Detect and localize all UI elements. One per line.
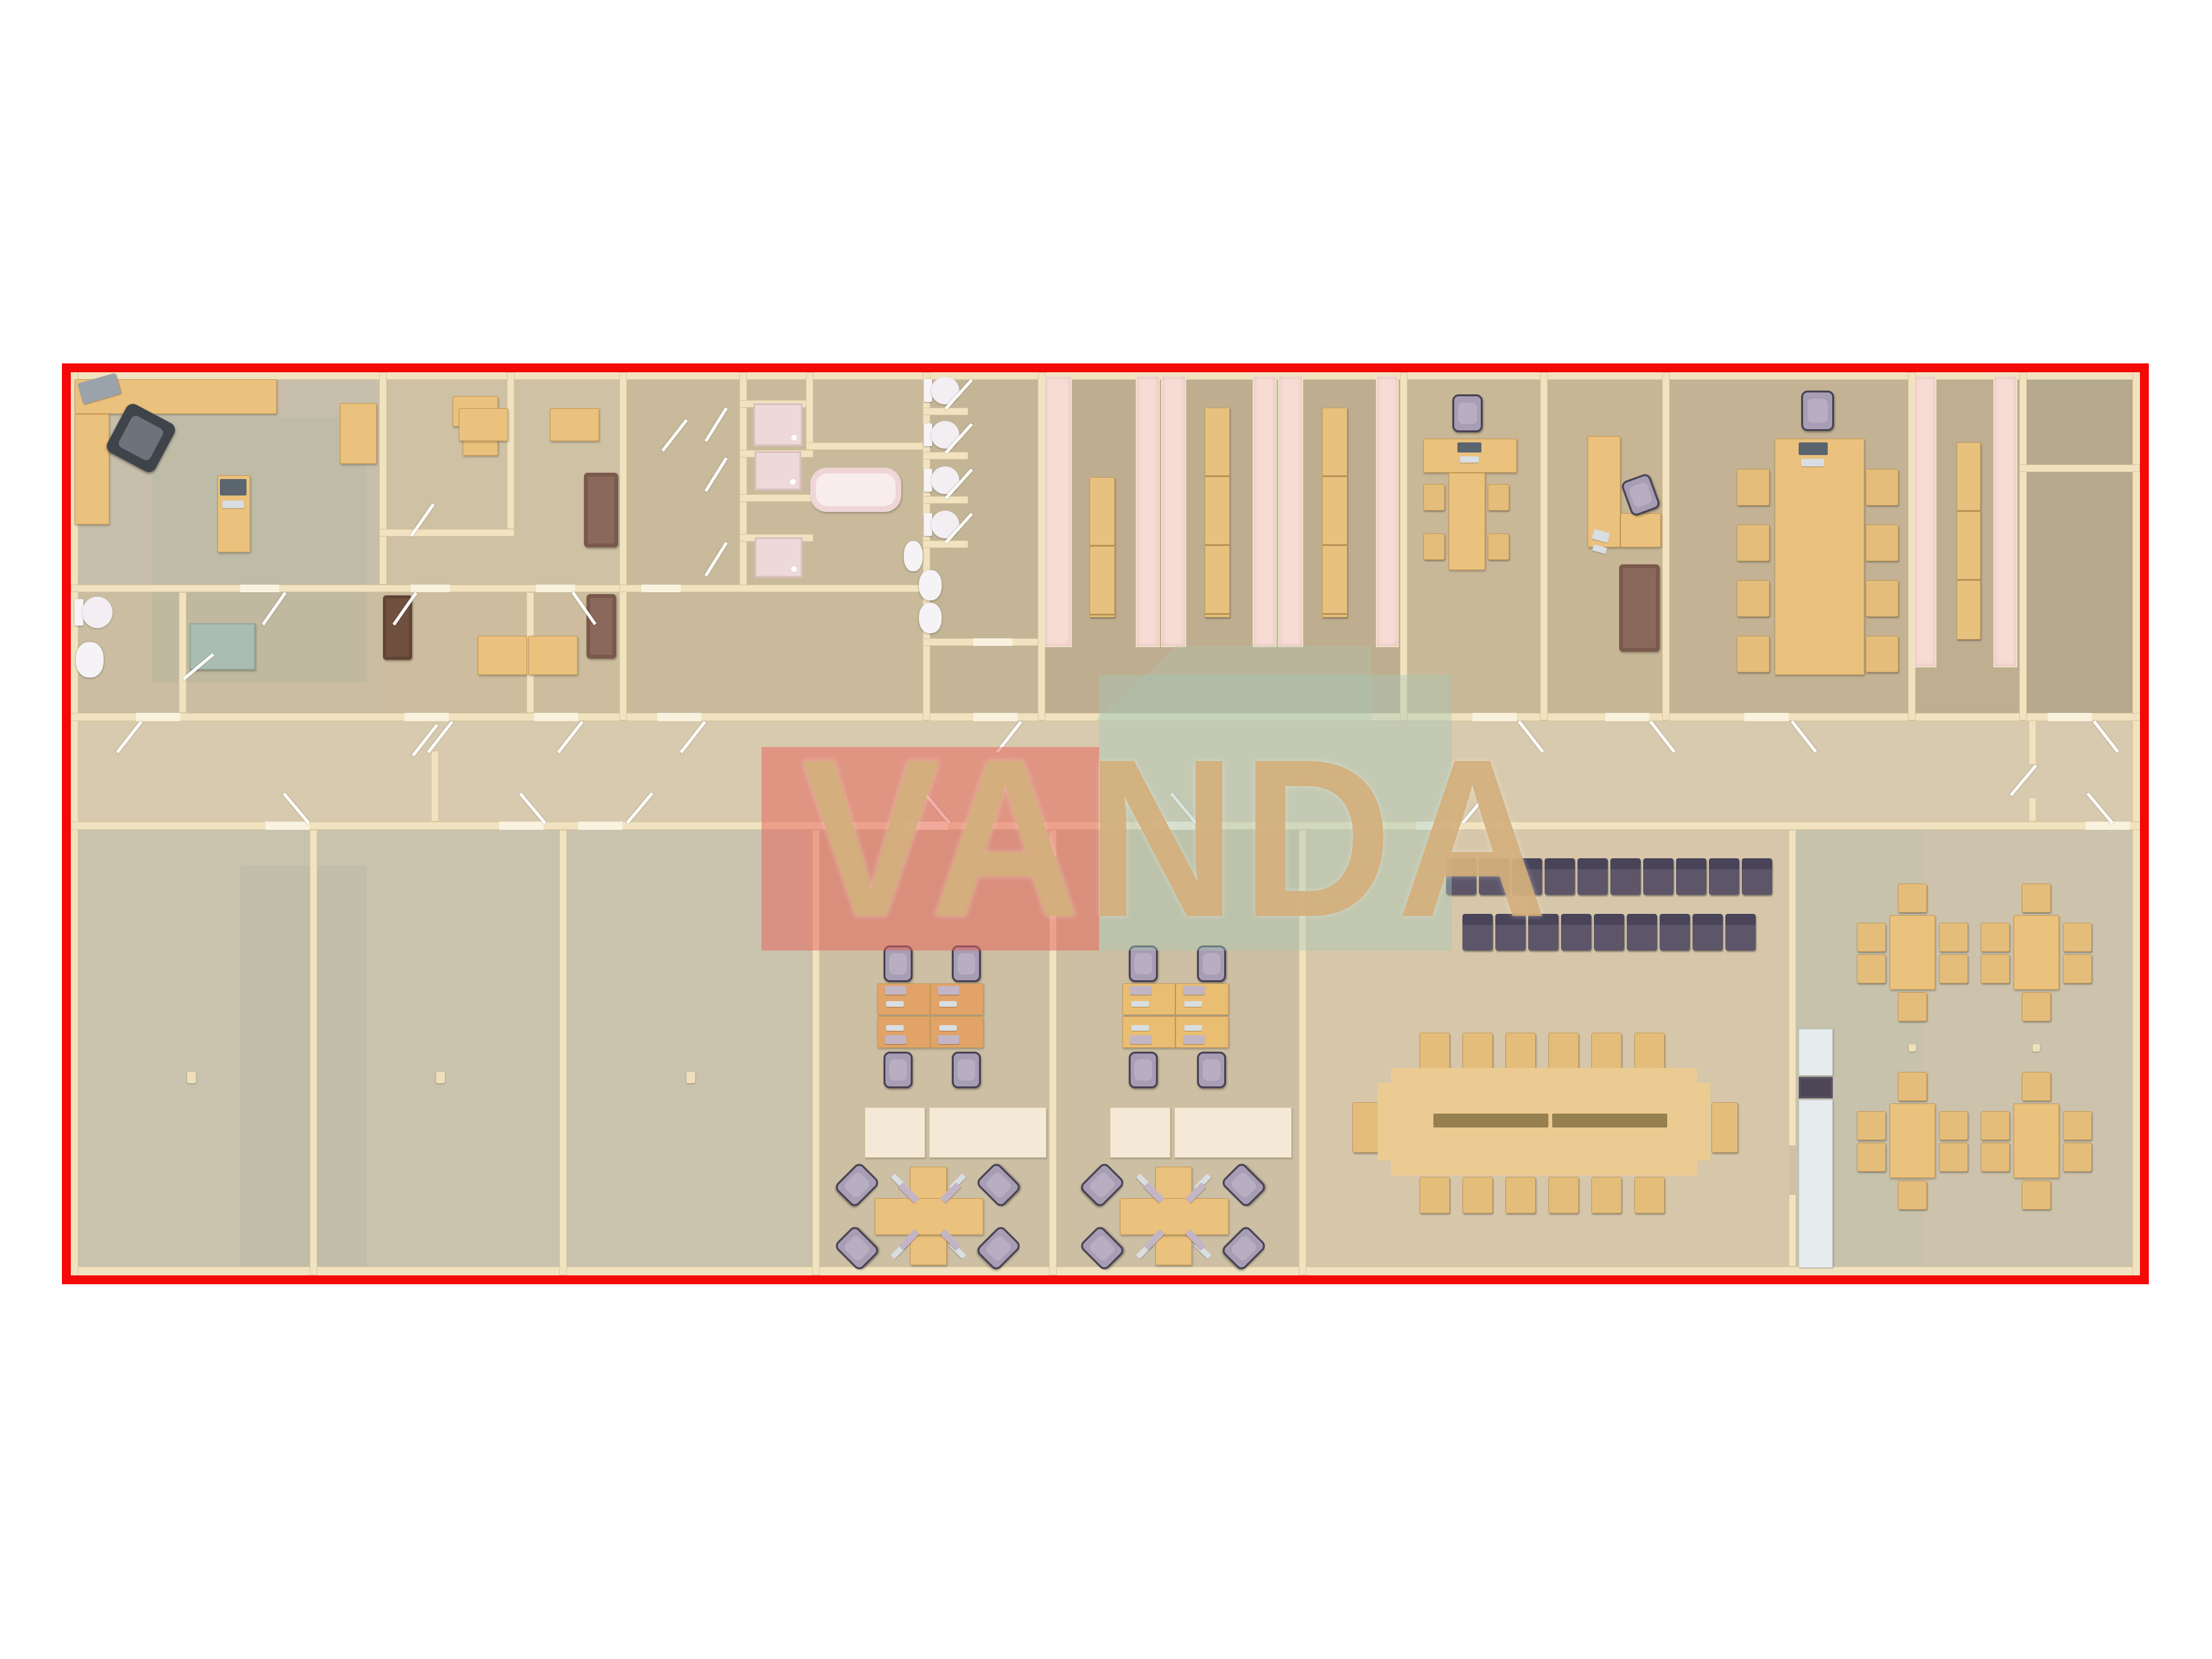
page: VANDA <box>0 0 2212 1659</box>
watermark-text: VANDA <box>801 726 1553 951</box>
floor-plan: VANDA <box>0 0 2212 1659</box>
